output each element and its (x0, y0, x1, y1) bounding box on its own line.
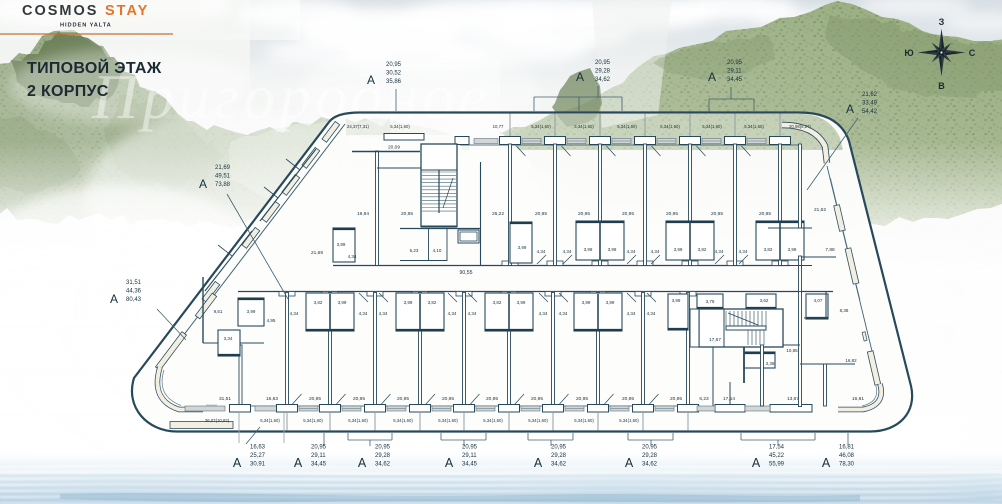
svg-text:29,11: 29,11 (462, 453, 477, 459)
svg-text:21,62: 21,62 (814, 207, 826, 213)
svg-text:5,34(1,60): 5,34(1,60) (660, 124, 680, 129)
svg-text:20,95: 20,95 (397, 396, 409, 402)
svg-text:5,34(1,60): 5,34(1,60) (390, 124, 410, 129)
svg-text:А: А (576, 70, 584, 84)
svg-text:4,07: 4,07 (814, 298, 823, 303)
svg-text:З: З (939, 17, 945, 27)
svg-text:4,34: 4,34 (537, 249, 546, 254)
svg-text:9,51: 9,51 (214, 309, 223, 314)
svg-text:17,54: 17,54 (723, 396, 735, 402)
svg-text:А: А (294, 456, 303, 470)
svg-text:20,95: 20,95 (531, 396, 543, 402)
svg-text:34,62: 34,62 (375, 462, 391, 468)
svg-text:30,52: 30,52 (386, 71, 402, 77)
svg-text:49,51: 49,51 (215, 174, 231, 180)
svg-text:20,95: 20,95 (353, 396, 365, 402)
svg-text:20,95: 20,95 (727, 60, 743, 66)
svg-text:54,42: 54,42 (862, 109, 878, 115)
svg-text:78,30: 78,30 (839, 462, 855, 468)
svg-text:80,43: 80,43 (126, 297, 142, 303)
svg-text:4,34: 4,34 (739, 249, 748, 254)
svg-text:3,36: 3,36 (766, 361, 775, 366)
svg-text:20,95: 20,95 (486, 396, 498, 402)
svg-text:А: А (110, 292, 118, 306)
svg-text:5,34(1,60): 5,34(1,60) (393, 418, 413, 423)
svg-text:90,55: 90,55 (460, 270, 473, 276)
svg-text:А: А (358, 456, 367, 470)
svg-text:4,34: 4,34 (563, 249, 572, 254)
svg-text:46,08: 46,08 (839, 453, 855, 459)
svg-text:4,10: 4,10 (433, 248, 442, 253)
svg-text:31,51: 31,51 (126, 280, 142, 286)
svg-text:4,34: 4,34 (559, 311, 568, 316)
svg-text:17,67: 17,67 (709, 337, 721, 343)
svg-text:45,22: 45,22 (769, 453, 785, 459)
svg-text:3,82: 3,82 (314, 300, 323, 305)
svg-text:3,82: 3,82 (428, 300, 437, 305)
svg-text:3,79: 3,79 (706, 299, 715, 304)
svg-text:30,91: 30,91 (250, 462, 266, 468)
svg-text:3,99: 3,99 (582, 300, 591, 305)
svg-text:34,62: 34,62 (642, 462, 658, 468)
svg-text:3,99: 3,99 (672, 298, 681, 303)
svg-text:4,34: 4,34 (448, 311, 457, 316)
svg-text:А: А (199, 177, 207, 191)
svg-text:А: А (752, 456, 761, 470)
svg-text:3,99: 3,99 (606, 300, 615, 305)
svg-text:А: А (846, 102, 854, 116)
svg-text:А: А (708, 70, 716, 84)
svg-text:4,34: 4,34 (627, 249, 636, 254)
svg-text:4,34: 4,34 (539, 311, 548, 316)
svg-text:26,22: 26,22 (492, 211, 504, 217)
svg-text:5,34(1,60): 5,34(1,60) (619, 418, 639, 423)
svg-text:А: А (367, 73, 375, 87)
svg-text:25,27: 25,27 (250, 453, 266, 459)
svg-text:5,23: 5,23 (410, 248, 419, 253)
svg-text:Ю: Ю (904, 48, 913, 58)
svg-text:А: А (233, 456, 242, 470)
svg-text:34,62: 34,62 (551, 462, 567, 468)
svg-text:4,34: 4,34 (348, 254, 357, 259)
svg-text:4,34: 4,34 (290, 311, 299, 316)
svg-text:29,28: 29,28 (595, 69, 611, 75)
svg-text:3,82: 3,82 (698, 247, 707, 252)
svg-text:3,99: 3,99 (608, 247, 617, 252)
svg-text:20,09: 20,09 (388, 145, 400, 151)
svg-text:5,34(1,60): 5,34(1,60) (617, 124, 637, 129)
svg-text:10,85: 10,85 (786, 348, 798, 353)
svg-text:3,99: 3,99 (674, 247, 683, 252)
svg-text:13,67: 13,67 (787, 396, 799, 402)
svg-text:29,28: 29,28 (375, 453, 391, 459)
svg-text:5,34(1,60): 5,34(1,60) (260, 418, 280, 423)
svg-text:20,95: 20,95 (642, 445, 658, 451)
svg-text:20,95: 20,95 (576, 396, 588, 402)
svg-text:29,28: 29,28 (642, 453, 658, 459)
svg-text:35,86: 35,86 (386, 79, 402, 85)
svg-text:20,95: 20,95 (622, 211, 634, 217)
svg-text:36,07(10,82): 36,07(10,82) (205, 418, 230, 423)
svg-text:2 КОРПУС: 2 КОРПУС (27, 83, 109, 100)
svg-text:А: А (445, 456, 454, 470)
svg-text:29,28: 29,28 (551, 453, 567, 459)
svg-text:С: С (969, 48, 976, 58)
svg-text:16,63: 16,63 (250, 445, 266, 451)
svg-text:HIDDEN YALTA: HIDDEN YALTA (60, 23, 112, 29)
svg-text:29,11: 29,11 (727, 69, 742, 75)
svg-text:5,34(1,60): 5,34(1,60) (702, 124, 722, 129)
svg-text:5,34(1,60): 5,34(1,60) (348, 418, 368, 423)
svg-text:6,23: 6,23 (699, 396, 709, 402)
svg-text:4,34: 4,34 (468, 311, 477, 316)
svg-text:5,34(1,60): 5,34(1,60) (574, 418, 594, 423)
svg-text:20,95: 20,95 (535, 211, 547, 217)
svg-text:8,38: 8,38 (840, 308, 849, 313)
svg-text:3,34: 3,34 (224, 336, 233, 341)
svg-text:4,34: 4,34 (651, 249, 660, 254)
svg-text:3,99: 3,99 (404, 300, 413, 305)
svg-text:31,51: 31,51 (219, 396, 231, 402)
svg-text:5,34(1,60): 5,34(1,60) (483, 418, 503, 423)
svg-text:55,99: 55,99 (769, 462, 785, 468)
svg-text:5,34(1,60): 5,34(1,60) (528, 418, 548, 423)
svg-text:3,99: 3,99 (337, 242, 346, 247)
svg-text:10,77: 10,77 (493, 124, 504, 129)
svg-text:ТИПОВОЙ ЭТАЖ: ТИПОВОЙ ЭТАЖ (27, 58, 162, 77)
svg-text:3,99: 3,99 (338, 300, 347, 305)
svg-text:STAY: STAY (105, 3, 149, 19)
svg-text:34,45: 34,45 (462, 462, 478, 468)
svg-text:3,99: 3,99 (788, 247, 797, 252)
svg-text:5,34(1,60): 5,34(1,60) (574, 124, 594, 129)
svg-text:20,95: 20,95 (666, 211, 678, 217)
svg-text:34,62: 34,62 (595, 77, 611, 83)
svg-text:А: А (625, 456, 634, 470)
svg-text:16,82: 16,82 (845, 358, 857, 363)
svg-text:20,95: 20,95 (375, 445, 391, 451)
svg-text:5,34(1,60): 5,34(1,60) (744, 124, 764, 129)
svg-text:21,69: 21,69 (215, 165, 231, 171)
svg-text:21,62: 21,62 (862, 92, 878, 98)
svg-text:20,95: 20,95 (595, 60, 611, 66)
svg-text:20,98(6,27): 20,98(6,27) (789, 124, 812, 129)
svg-text:34,45: 34,45 (311, 462, 327, 468)
svg-text:4,34: 4,34 (379, 311, 388, 316)
svg-text:20,95: 20,95 (401, 211, 413, 217)
svg-text:4,34: 4,34 (647, 311, 656, 316)
svg-text:20,95: 20,95 (578, 211, 590, 217)
svg-text:17,54: 17,54 (769, 445, 785, 451)
svg-text:33,49: 33,49 (862, 101, 878, 107)
svg-text:7,88: 7,88 (825, 247, 835, 253)
svg-text:А: А (534, 456, 543, 470)
svg-text:24,37(7,31): 24,37(7,31) (347, 124, 370, 129)
svg-text:16,81: 16,81 (852, 396, 864, 402)
svg-text:5,34(1,60): 5,34(1,60) (531, 124, 551, 129)
svg-text:3,99: 3,99 (517, 300, 526, 305)
svg-text:20,95: 20,95 (551, 445, 567, 451)
svg-text:19,94: 19,94 (357, 211, 369, 217)
svg-text:3,82: 3,82 (493, 300, 502, 305)
svg-text:16,81: 16,81 (839, 445, 855, 451)
svg-text:5,34(1,60): 5,34(1,60) (438, 418, 458, 423)
svg-text:34,45: 34,45 (727, 77, 743, 83)
svg-text:20,95: 20,95 (670, 396, 682, 402)
svg-text:20,95: 20,95 (309, 396, 321, 402)
svg-text:73,88: 73,88 (215, 182, 231, 188)
svg-text:20,95: 20,95 (622, 396, 634, 402)
svg-text:3,62: 3,62 (760, 298, 769, 303)
svg-text:В: В (938, 81, 945, 91)
svg-text:20,95: 20,95 (759, 211, 771, 217)
svg-text:20,95: 20,95 (711, 211, 723, 217)
svg-text:3,99: 3,99 (518, 245, 527, 250)
svg-text:21,69: 21,69 (311, 250, 323, 256)
svg-text:44,36: 44,36 (126, 289, 142, 295)
svg-text:COSMOS: COSMOS (22, 3, 98, 19)
svg-text:3,99: 3,99 (247, 309, 256, 314)
svg-text:4,34: 4,34 (359, 311, 368, 316)
svg-text:20,95: 20,95 (386, 62, 402, 68)
svg-text:4,34: 4,34 (715, 249, 724, 254)
svg-text:А: А (822, 456, 831, 470)
svg-text:4,34: 4,34 (627, 311, 636, 316)
svg-text:3,82: 3,82 (764, 247, 773, 252)
svg-text:16,63: 16,63 (266, 396, 278, 402)
svg-text:5,34(1,60): 5,34(1,60) (303, 418, 323, 423)
svg-text:20,95: 20,95 (442, 396, 454, 402)
svg-text:4,95: 4,95 (267, 318, 276, 323)
svg-text:29,11: 29,11 (311, 453, 326, 459)
svg-text:3,99: 3,99 (584, 247, 593, 252)
